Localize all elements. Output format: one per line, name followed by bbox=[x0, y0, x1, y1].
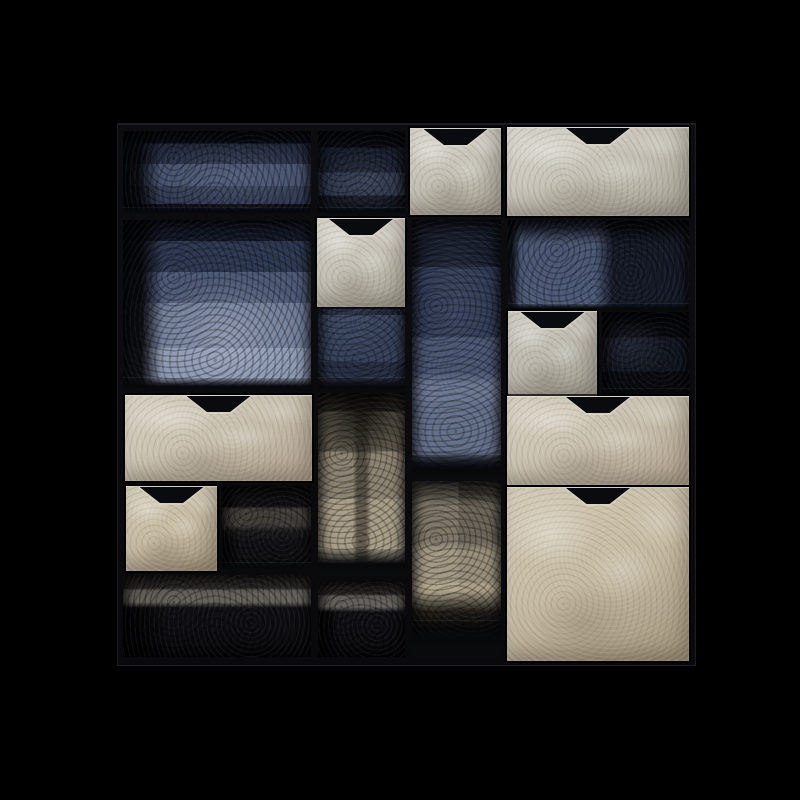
drawer-lower-left-small bbox=[126, 486, 217, 571]
drawer-top-small bbox=[410, 128, 501, 215]
drawers-layer bbox=[118, 124, 695, 665]
drawer-upper-center bbox=[317, 218, 405, 307]
drawer-mid-left-wide bbox=[125, 395, 312, 481]
drawer-top-wide bbox=[507, 127, 689, 216]
drawer-mid-right-wide bbox=[507, 396, 689, 485]
drawer-mid-right-small bbox=[508, 311, 597, 398]
drawer-bottom-right-large bbox=[507, 487, 689, 661]
shelving-unit bbox=[117, 123, 696, 666]
product-photo bbox=[0, 0, 800, 800]
